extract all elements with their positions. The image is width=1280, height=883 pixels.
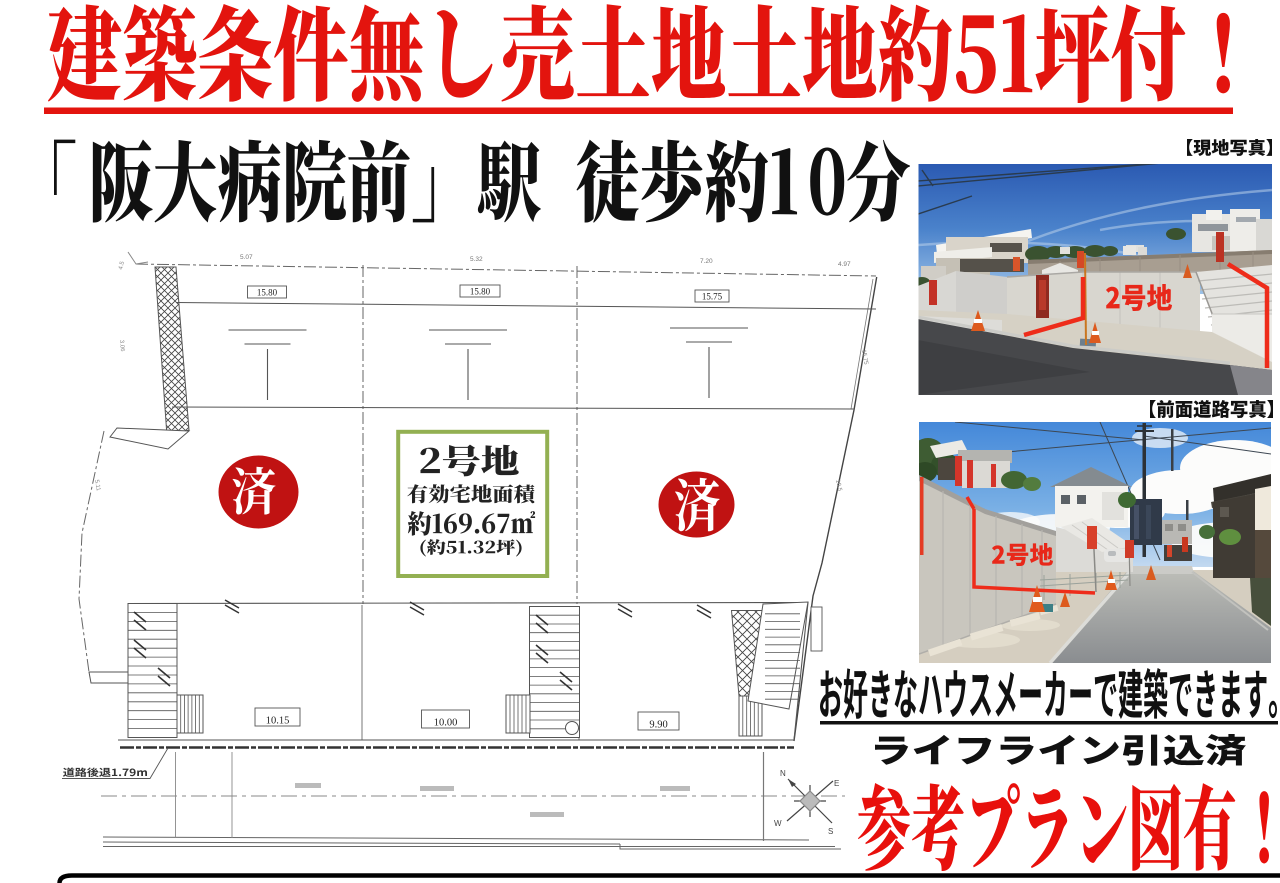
svg-text:5.11: 5.11 [93,479,101,492]
svg-text:15.80: 15.80 [470,286,491,296]
svg-text:10.15: 10.15 [266,715,290,726]
svg-text:4.97: 4.97 [838,261,851,268]
svg-text:5.07: 5.07 [240,254,253,261]
svg-text:9.90: 9.90 [649,719,667,730]
svg-text:15.80: 15.80 [257,287,278,297]
svg-text:S: S [828,827,833,836]
svg-text:5.32: 5.32 [470,256,483,263]
svg-text:4.5: 4.5 [118,260,126,270]
svg-text:3.06: 3.06 [118,340,125,353]
svg-text:10.00: 10.00 [434,717,458,728]
svg-text:7.20: 7.20 [700,258,713,265]
svg-text:W: W [774,819,782,828]
svg-text:E: E [834,779,839,788]
svg-text:15.75: 15.75 [702,291,723,301]
svg-text:10.5: 10.5 [834,479,842,492]
svg-text:N: N [780,769,786,778]
